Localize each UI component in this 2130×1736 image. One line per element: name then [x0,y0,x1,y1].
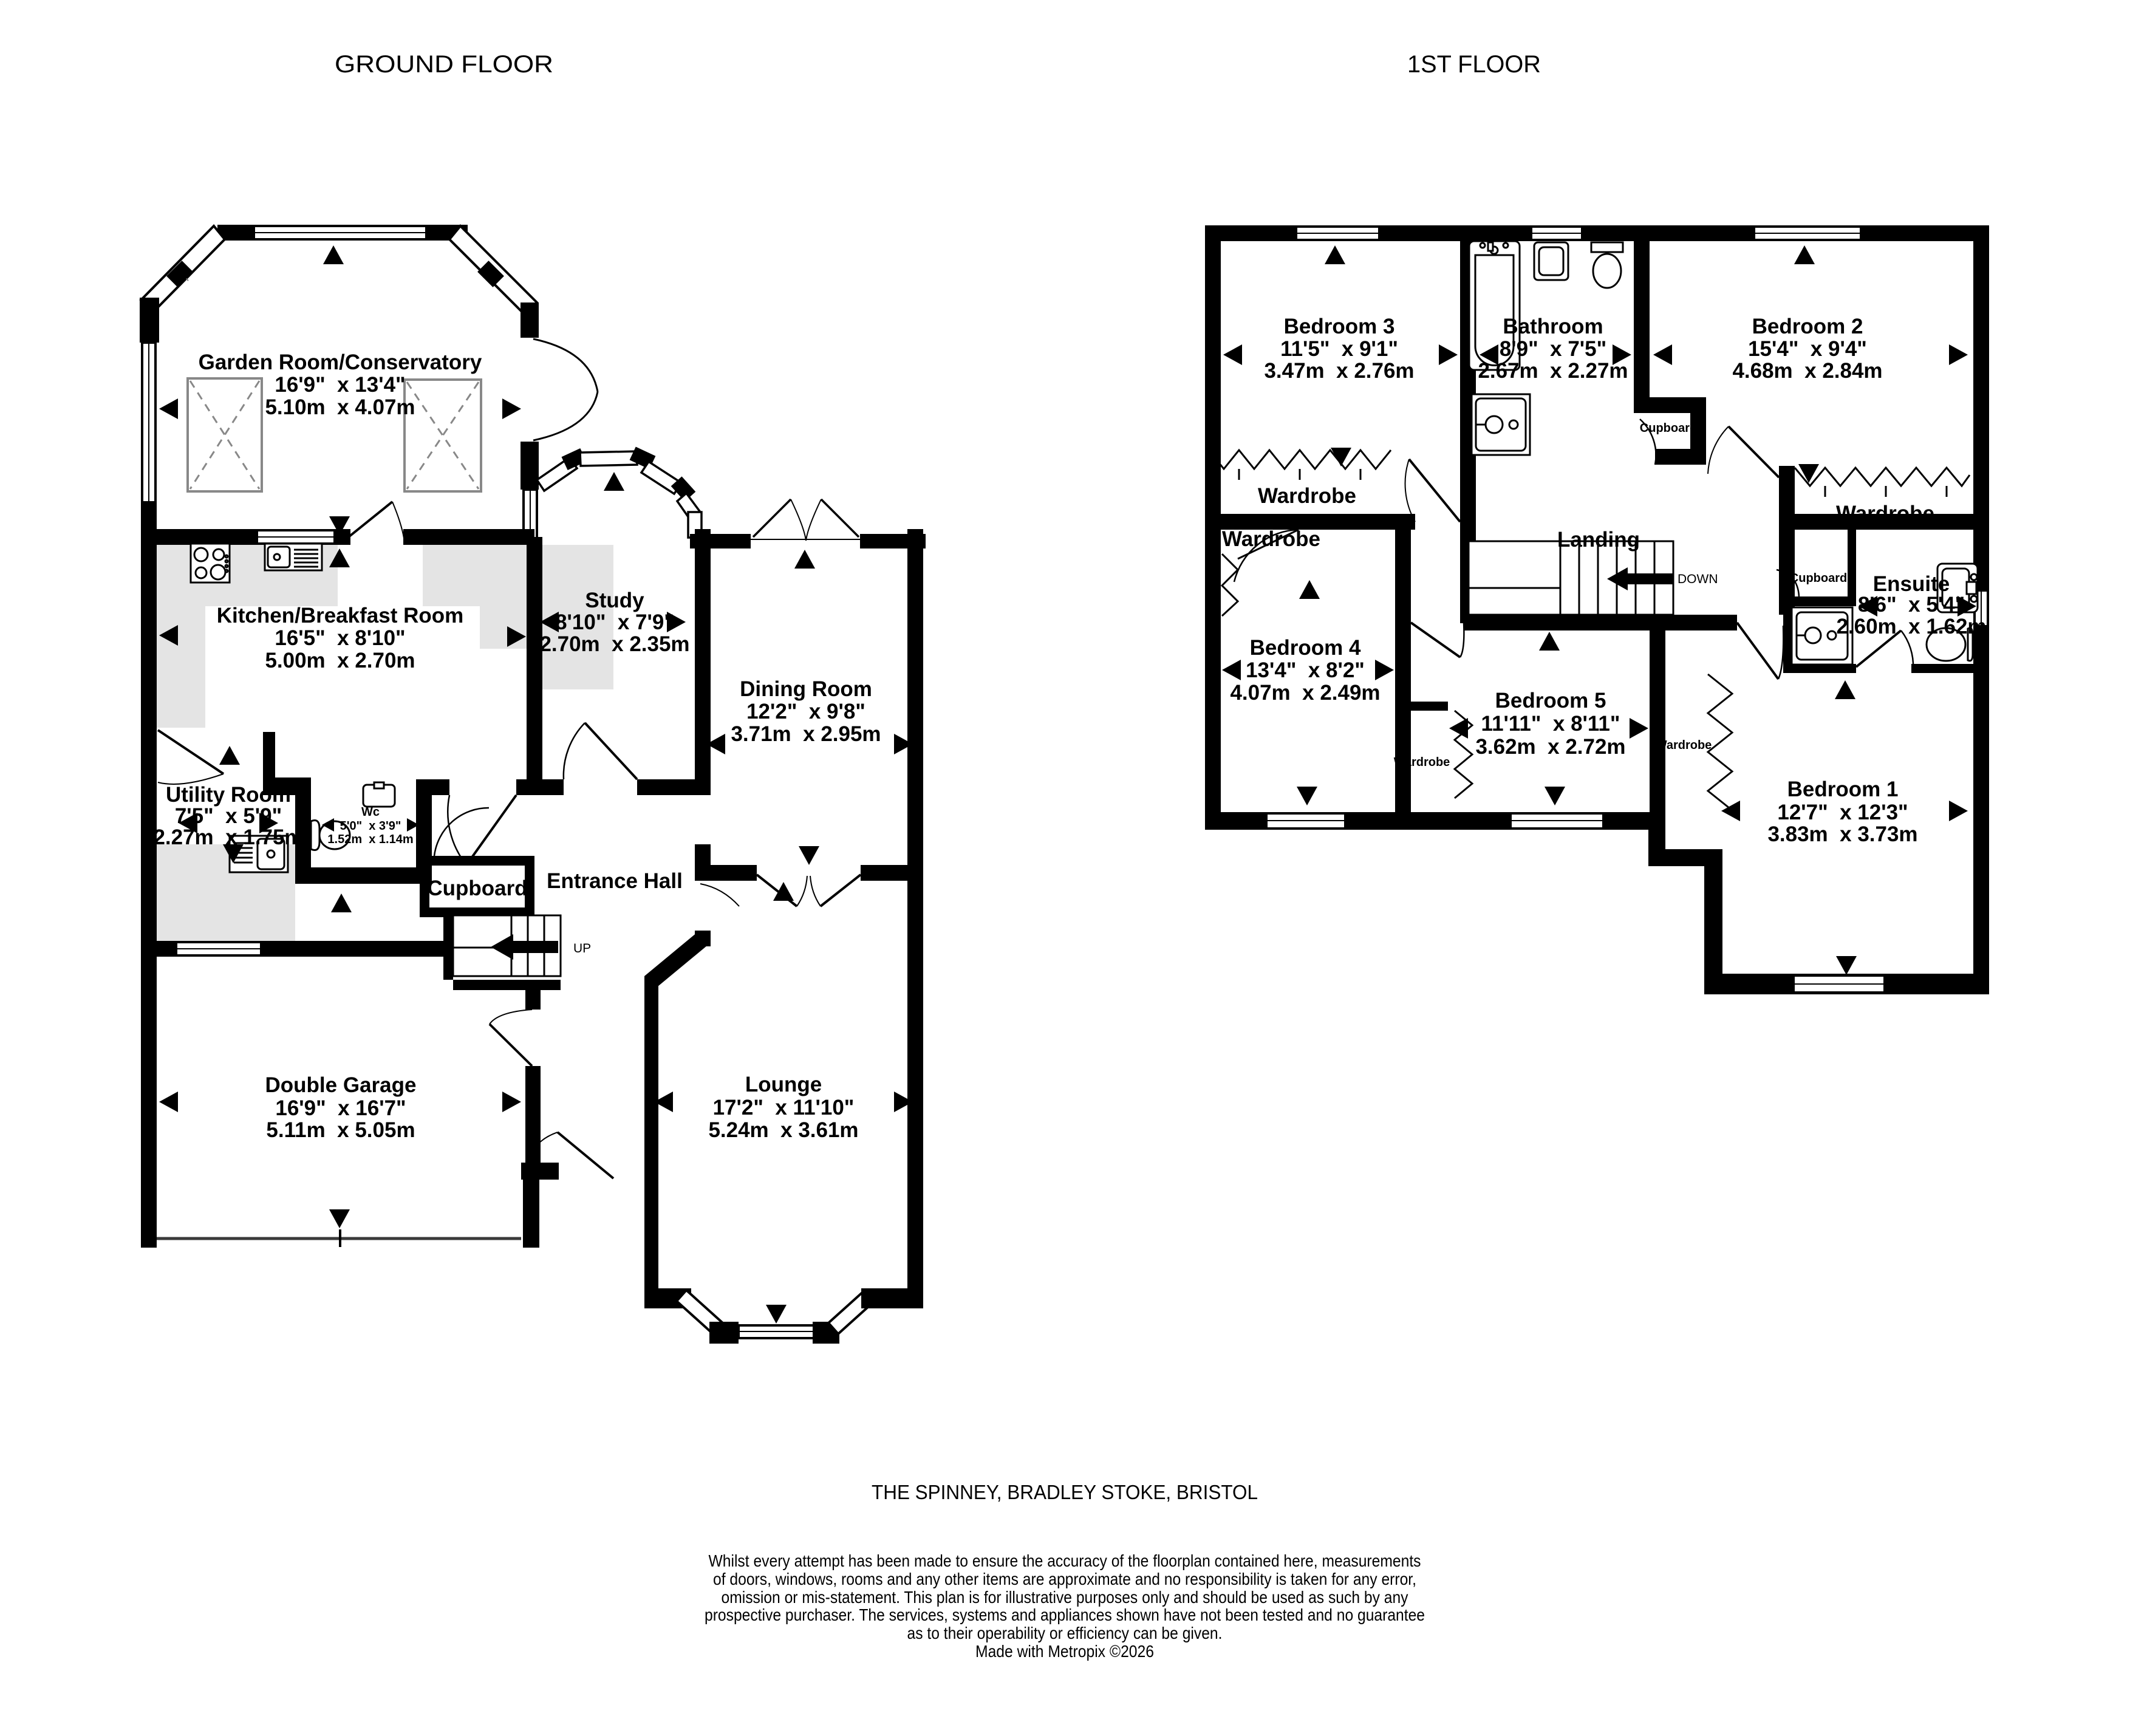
svg-text:Wardrobe: Wardrobe [1836,502,1934,525]
svg-text:THE SPINNEY, BRADLEY STOKE, BR: THE SPINNEY, BRADLEY STOKE, BRISTOL [872,1481,1258,1503]
svg-text:17'2" x 11'10": 17'2" x 11'10" [713,1096,855,1119]
svg-text:Garden Room/Conservatory: Garden Room/Conservatory [199,350,482,374]
svg-text:12'2" x 9'8": 12'2" x 9'8" [746,700,865,723]
svg-text:2.70m x 2.35m: 2.70m x 2.35m [539,632,689,656]
svg-text:Lounge: Lounge [745,1073,822,1096]
svg-text:Kitchen/Breakfast Room: Kitchen/Breakfast Room [217,604,463,627]
svg-text:of doors, windows, rooms and a: of doors, windows, rooms and any other i… [713,1570,1416,1588]
svg-text:3.83m x 3.73m: 3.83m x 3.73m [1767,822,1917,846]
svg-text:as to their operability or eff: as to their operability or efficiency ca… [907,1624,1223,1642]
svg-text:Cupboard: Cupboard [427,877,527,900]
svg-text:Bedroom 1: Bedroom 1 [1787,777,1899,801]
svg-text:Landing: Landing [1557,528,1640,552]
svg-text:5'0" x 3'9": 5'0" x 3'9" [340,819,401,833]
svg-text:7'5" x 5'9": 7'5" x 5'9" [175,804,282,828]
svg-text:omission or mis-statement. Thi: omission or mis-statement. This plan is … [722,1588,1408,1607]
svg-text:Study: Study [585,589,644,612]
svg-text:Cupboard: Cupboard [1640,422,1697,435]
svg-text:13'4" x 8'2": 13'4" x 8'2" [1246,658,1365,682]
svg-text:16'5" x 8'10": 16'5" x 8'10" [275,626,405,650]
svg-text:2.27m x 1.75m: 2.27m x 1.75m [153,825,303,849]
svg-text:Bedroom 3: Bedroom 3 [1284,315,1395,338]
svg-text:5.00m x 2.70m: 5.00m x 2.70m [265,649,415,672]
svg-text:Bathroom: Bathroom [1503,315,1603,338]
svg-text:16'9" x 16'7": 16'9" x 16'7" [275,1096,406,1120]
svg-text:Cupboard: Cupboard [1790,572,1847,585]
svg-text:5.24m x 3.61m: 5.24m x 3.61m [708,1118,858,1142]
svg-text:2.60m x 1.62m: 2.60m x 1.62m [1836,615,1986,638]
svg-text:GROUND FLOOR: GROUND FLOOR [335,51,553,78]
svg-text:1.52m x 1.14m: 1.52m x 1.14m [327,833,413,846]
svg-text:Whilst every attempt has been: Whilst every attempt has been made to en… [709,1551,1421,1570]
svg-text:16'9" x 13'4": 16'9" x 13'4" [275,373,405,397]
svg-text:8'9" x 7'5": 8'9" x 7'5" [1500,337,1606,361]
svg-text:Bedroom 2: Bedroom 2 [1752,315,1863,338]
svg-text:5.10m x 4.07m: 5.10m x 4.07m [265,395,415,419]
svg-text:8'10" x 7'9": 8'10" x 7'9" [555,610,674,634]
svg-text:11'5" x 9'1": 11'5" x 9'1" [1280,337,1398,361]
svg-text:Entrance Hall: Entrance Hall [547,869,683,893]
svg-text:8'6" x 5'4": 8'6" x 5'4" [1858,593,1965,617]
svg-text:Dining Room: Dining Room [740,677,872,701]
svg-text:3.71m x 2.95m: 3.71m x 2.95m [731,722,881,746]
svg-text:Bedroom 5: Bedroom 5 [1495,689,1606,713]
svg-text:3.62m x 2.72m: 3.62m x 2.72m [1475,735,1625,759]
svg-text:4.07m x 2.49m: 4.07m x 2.49m [1230,681,1380,705]
svg-text:2.67m x 2.27m: 2.67m x 2.27m [1478,359,1628,383]
svg-text:11'11" x 8'11": 11'11" x 8'11" [1481,712,1620,736]
svg-text:Wardrobe: Wardrobe [1258,484,1356,508]
svg-text:Wardrobe: Wardrobe [1222,527,1320,551]
svg-text:prospective purchaser. The ser: prospective purchaser. The services, sys… [705,1605,1425,1624]
svg-text:Double Garage: Double Garage [265,1073,417,1097]
svg-text:Wardrobe: Wardrobe [1394,756,1450,769]
svg-text:1ST FLOOR: 1ST FLOOR [1407,51,1541,78]
svg-text:Utility Room: Utility Room [166,783,291,807]
svg-text:5.11m x 5.05m: 5.11m x 5.05m [266,1118,415,1142]
svg-text:Bedroom 4: Bedroom 4 [1250,636,1361,660]
svg-text:Wc: Wc [361,805,380,819]
svg-text:Wardrobe: Wardrobe [1656,739,1712,752]
svg-text:3.47m x 2.76m: 3.47m x 2.76m [1264,359,1414,383]
svg-text:15'4" x 9'4": 15'4" x 9'4" [1748,337,1867,361]
svg-text:12'7" x 12'3": 12'7" x 12'3" [1777,801,1908,824]
svg-text:Made with Metropix ©2026: Made with Metropix ©2026 [975,1642,1154,1661]
svg-text:4.68m x 2.84m: 4.68m x 2.84m [1732,359,1882,383]
svg-text:DOWN: DOWN [1678,572,1718,586]
svg-text:UP: UP [573,941,591,955]
